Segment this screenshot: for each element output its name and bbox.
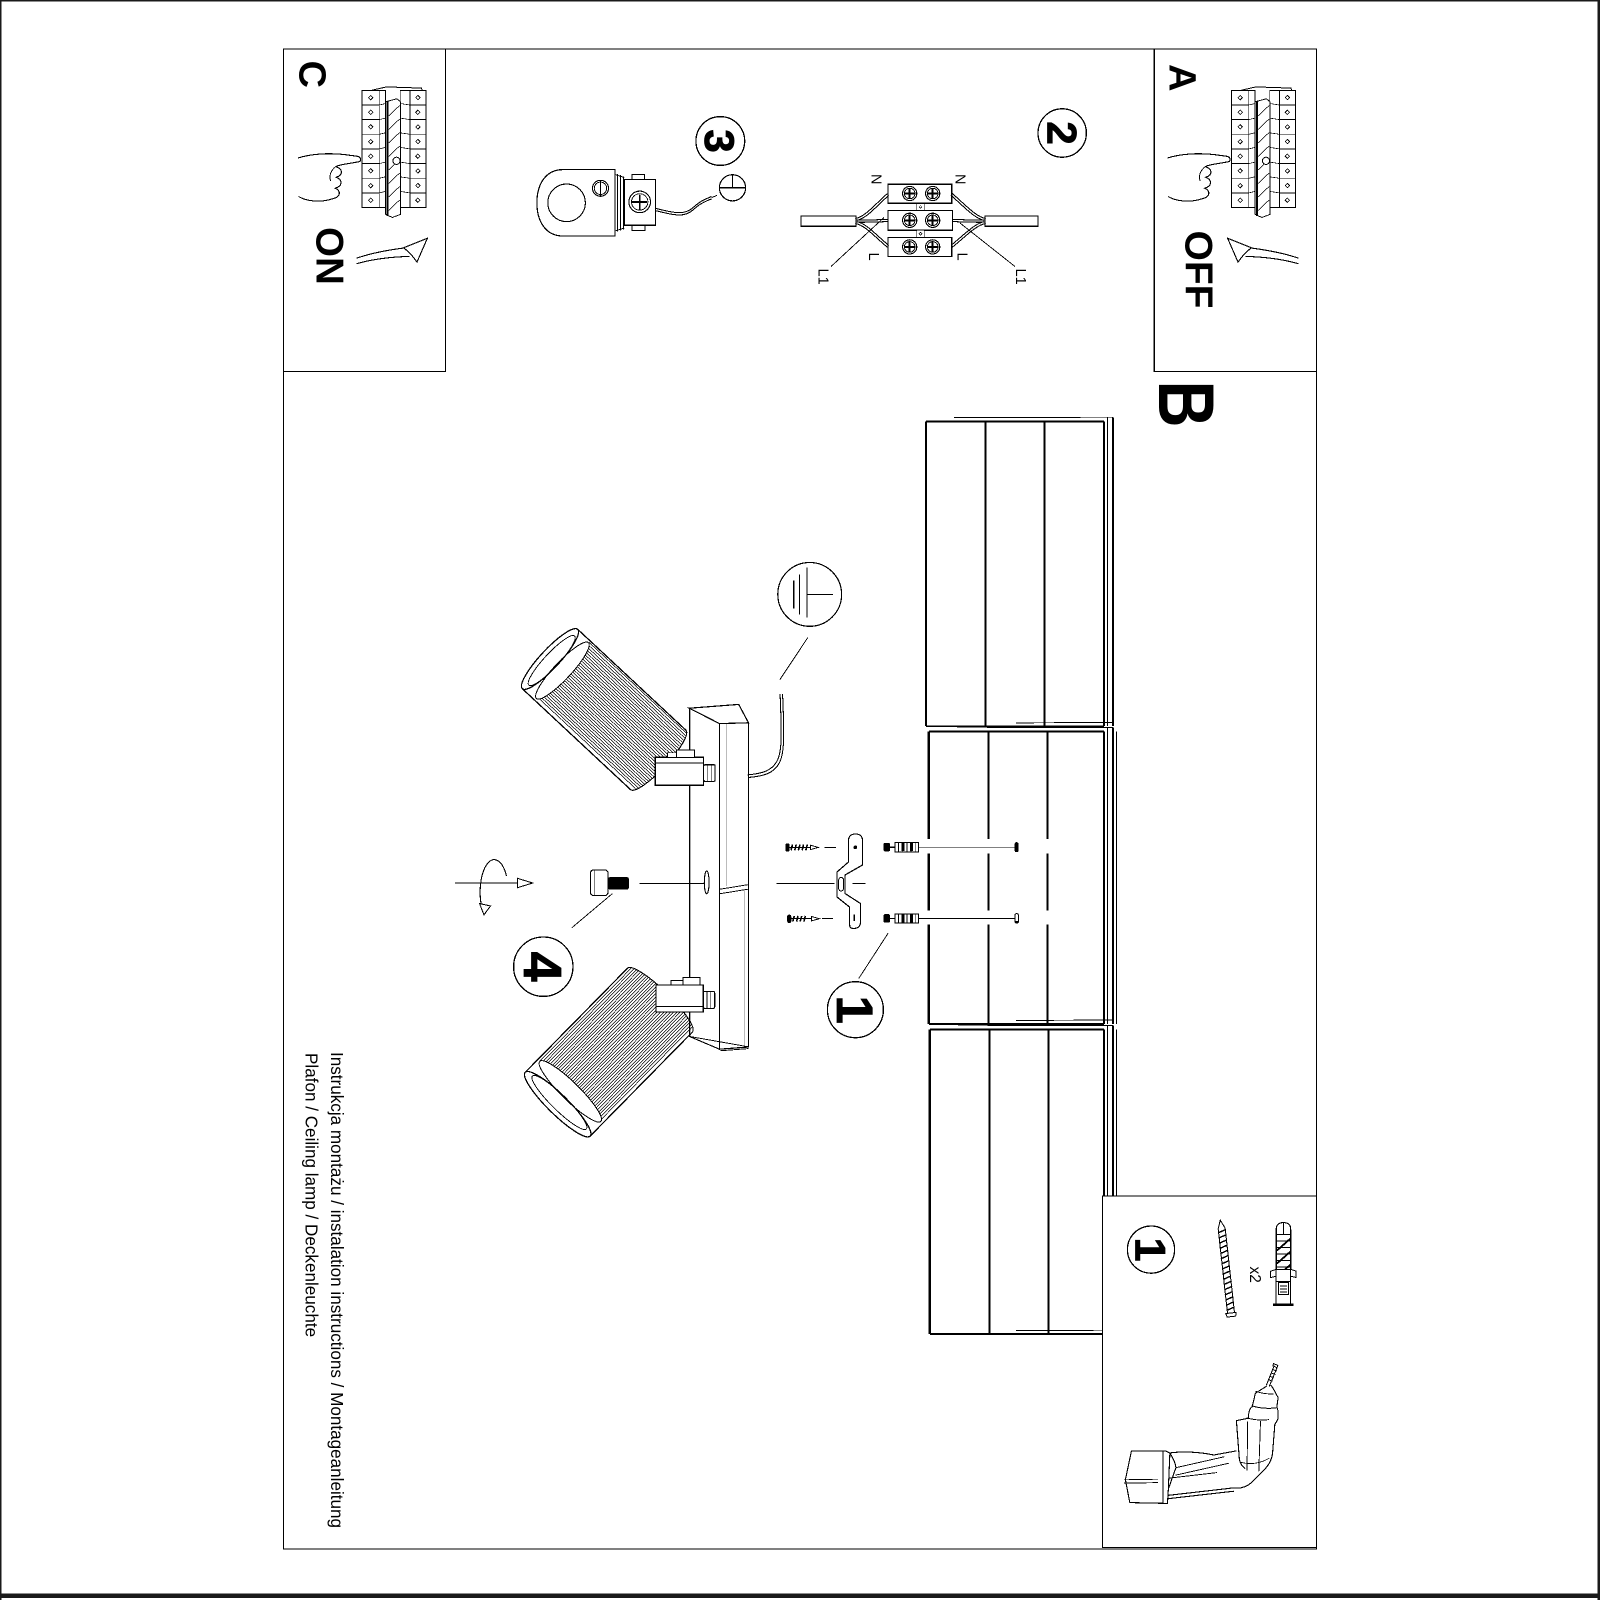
svg-text:B: B (1142, 381, 1231, 428)
svg-text:Plafon / Ceiling lamp / Decken: Plafon / Ceiling lamp / Deckenleuchte (302, 1053, 321, 1337)
svg-text:3: 3 (696, 129, 743, 152)
svg-text:A: A (1161, 64, 1203, 91)
svg-text:L1: L1 (1012, 269, 1028, 285)
svg-text:N: N (952, 174, 968, 184)
svg-text:L1: L1 (815, 269, 831, 285)
svg-text:Instrukcja montażu / instalati: Instrukcja montażu / instalation instruc… (327, 1052, 346, 1528)
svg-text:1: 1 (1126, 1238, 1174, 1262)
svg-text:ON: ON (308, 227, 351, 285)
svg-text:L: L (865, 253, 881, 261)
svg-text:N: N (868, 174, 884, 184)
svg-text:2: 2 (1039, 121, 1086, 144)
svg-text:OFF: OFF (1177, 231, 1220, 309)
svg-text:1: 1 (826, 996, 883, 1024)
svg-text:x2: x2 (1246, 1267, 1263, 1283)
svg-text:4: 4 (512, 952, 572, 982)
svg-text:C: C (291, 61, 333, 88)
svg-text:L: L (954, 253, 970, 261)
